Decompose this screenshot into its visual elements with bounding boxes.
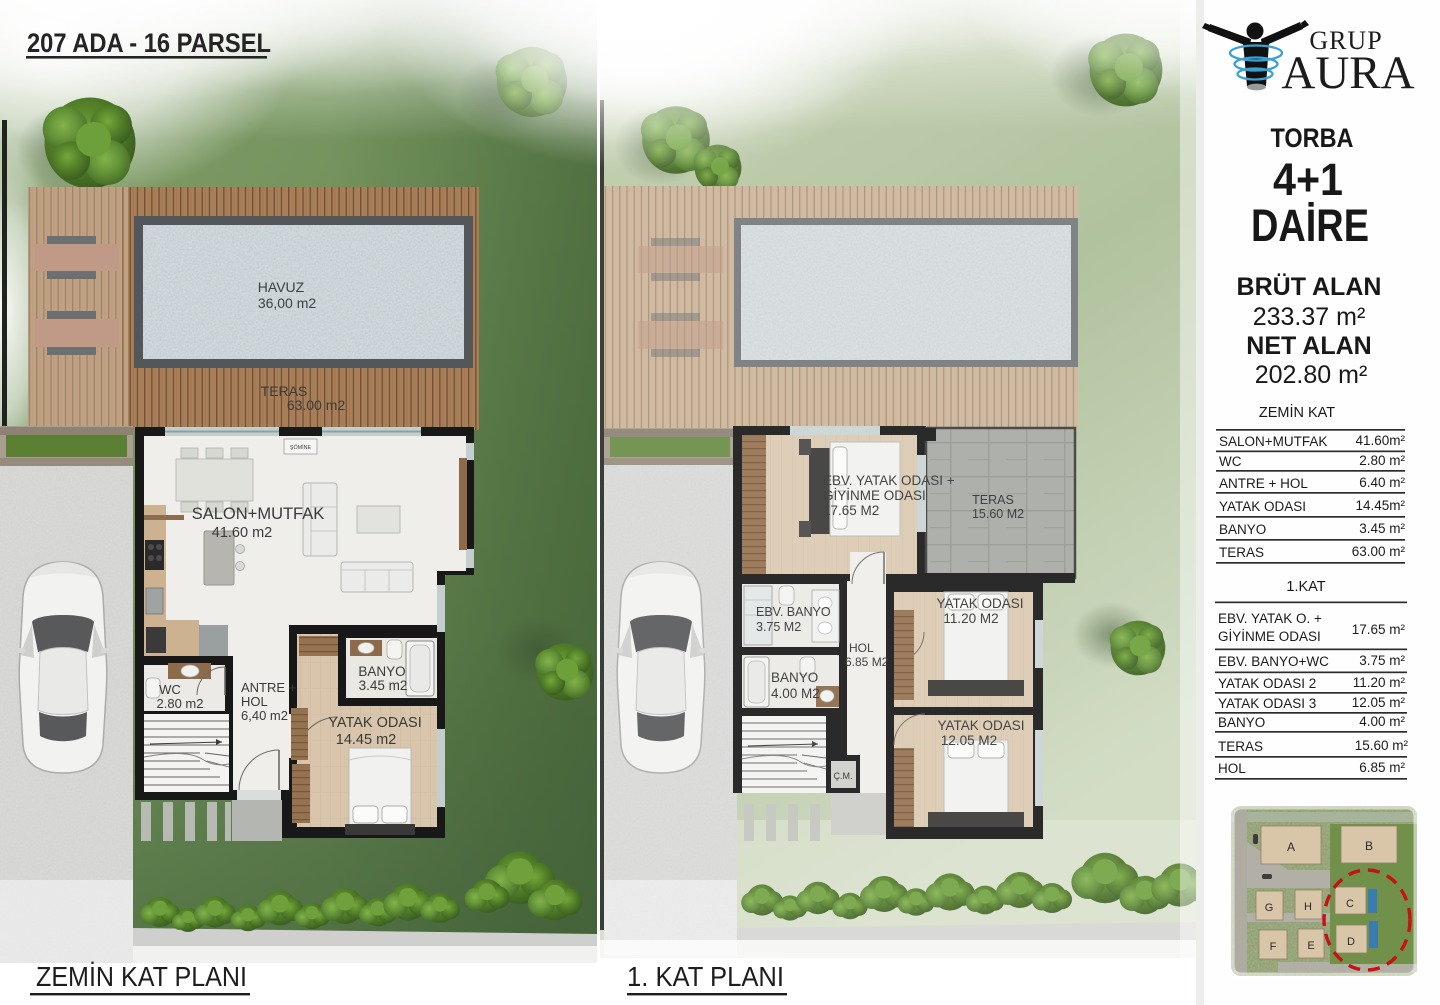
svg-text:ZEMİN KAT: ZEMİN KAT	[1259, 403, 1335, 421]
svg-text:C: C	[1346, 898, 1354, 910]
svg-text:BANYO: BANYO	[358, 664, 405, 679]
svg-text:SALON+MUTFAK: SALON+MUTFAK	[1219, 434, 1327, 449]
svg-text:H: H	[1304, 901, 1312, 913]
svg-text:6.85 m²: 6.85 m²	[1359, 760, 1405, 775]
svg-text:1.KAT: 1.KAT	[1286, 579, 1325, 595]
svg-text:6,40 m2: 6,40 m2	[241, 708, 288, 723]
svg-text:12.05 m²: 12.05 m²	[1352, 695, 1406, 710]
svg-text:11.20 m²: 11.20 m²	[1353, 675, 1406, 690]
svg-text:3.45 m²: 3.45 m²	[1359, 521, 1405, 536]
svg-text:14.45m²: 14.45m²	[1355, 498, 1405, 513]
svg-text:207 ADA - 16 PARSEL: 207 ADA - 16 PARSEL	[27, 28, 271, 58]
svg-text:1. KAT PLANI: 1. KAT PLANI	[627, 961, 784, 992]
svg-text:A: A	[1287, 840, 1295, 854]
svg-text:HAVUZ: HAVUZ	[258, 279, 305, 295]
svg-text:HOL: HOL	[1218, 761, 1246, 776]
svg-text:YATAK ODASI 2: YATAK ODASI 2	[1218, 676, 1316, 691]
svg-text:F: F	[1270, 941, 1277, 953]
svg-text:SALON+MUTFAK: SALON+MUTFAK	[192, 505, 325, 523]
svg-text:3.45 m2: 3.45 m2	[359, 678, 408, 693]
svg-text:DAİRE: DAİRE	[1251, 200, 1369, 251]
svg-text:4+1: 4+1	[1273, 154, 1343, 205]
svg-text:TERAS: TERAS	[1218, 739, 1263, 754]
svg-text:36,00 m2: 36,00 m2	[258, 295, 317, 311]
svg-text:YATAK ODASI: YATAK ODASI	[1219, 499, 1306, 514]
svg-text:4.00 m²: 4.00 m²	[1359, 714, 1405, 729]
svg-text:17.65 m²: 17.65 m²	[1352, 622, 1406, 637]
svg-text:HOL: HOL	[241, 694, 268, 709]
svg-text:GİYİNME ODASI: GİYİNME ODASI	[1218, 629, 1321, 644]
svg-text:D: D	[1347, 936, 1355, 948]
svg-text:63.00 m2: 63.00 m2	[287, 397, 346, 413]
svg-text:15.60 m²: 15.60 m²	[1355, 738, 1409, 753]
svg-text:ZEMİN KAT PLANI: ZEMİN KAT PLANI	[36, 961, 247, 992]
svg-text:TERAS: TERAS	[1219, 545, 1264, 560]
svg-text:2.80 m2: 2.80 m2	[157, 696, 204, 711]
svg-text:ANTRE +: ANTRE +	[241, 680, 296, 695]
svg-text:6.40 m²: 6.40 m²	[1359, 475, 1405, 490]
svg-text:WC: WC	[159, 682, 181, 697]
svg-text:202.80 m²: 202.80 m²	[1255, 361, 1368, 389]
svg-text:2.80 m²: 2.80 m²	[1359, 453, 1405, 468]
svg-text:3.75 m²: 3.75 m²	[1359, 653, 1405, 668]
svg-text:YATAK ODASI: YATAK ODASI	[328, 715, 421, 731]
svg-text:ANTRE + HOL: ANTRE + HOL	[1219, 476, 1308, 491]
svg-text:EBV. YATAK O. +: EBV. YATAK O. +	[1218, 611, 1322, 626]
svg-text:BANYO: BANYO	[1219, 522, 1266, 537]
svg-text:ŞÖMİNE: ŞÖMİNE	[290, 444, 312, 451]
svg-text:YATAK ODASI 3: YATAK ODASI 3	[1218, 696, 1316, 711]
svg-text:AURA: AURA	[1281, 47, 1414, 99]
svg-text:G: G	[1265, 902, 1274, 914]
svg-text:NET ALAN: NET ALAN	[1246, 332, 1371, 360]
svg-text:41.60 m2: 41.60 m2	[212, 525, 272, 541]
svg-text:EBV. BANYO+WC: EBV. BANYO+WC	[1218, 654, 1329, 669]
svg-text:WC: WC	[1219, 454, 1242, 469]
svg-text:63.00 m²: 63.00 m²	[1352, 544, 1406, 559]
svg-text:233.37 m²: 233.37 m²	[1253, 303, 1366, 331]
svg-text:TORBA: TORBA	[1271, 123, 1354, 153]
svg-text:BRÜT ALAN: BRÜT ALAN	[1237, 272, 1382, 301]
svg-text:E: E	[1307, 940, 1314, 952]
svg-text:BANYO: BANYO	[1218, 715, 1265, 730]
svg-text:41.60m²: 41.60m²	[1355, 433, 1405, 448]
svg-text:B: B	[1365, 839, 1373, 853]
svg-text:14.45 m2: 14.45 m2	[336, 732, 396, 748]
